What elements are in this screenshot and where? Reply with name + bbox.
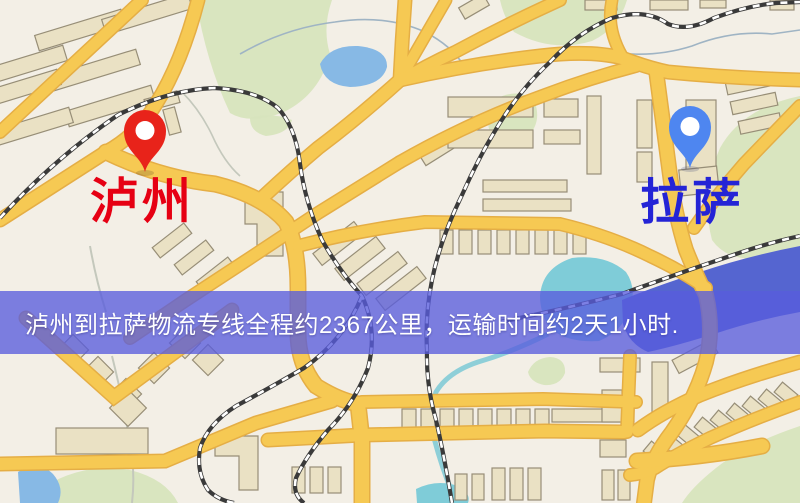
building-block bbox=[587, 96, 601, 174]
road bbox=[362, 399, 636, 402]
route-info-text: 泸州到拉萨物流专线全程约2367公里，运输时间约2天1小时. bbox=[25, 305, 679, 340]
building-block bbox=[510, 468, 523, 500]
building-block bbox=[650, 0, 688, 10]
map-screenshot: 泸州 拉萨 泸州到拉萨物流专线全程约2367公里，运输时间约2天1小时. bbox=[0, 0, 800, 503]
lake bbox=[18, 466, 61, 503]
building-block bbox=[492, 468, 505, 500]
building-block bbox=[402, 409, 416, 429]
lake bbox=[320, 46, 387, 87]
route-info-banner: 泸州到拉萨物流专线全程约2367公里，运输时间约2天1小时. bbox=[0, 291, 800, 354]
building-block bbox=[544, 130, 580, 144]
building-block bbox=[600, 440, 626, 457]
building-block bbox=[459, 0, 490, 19]
building-block bbox=[478, 230, 491, 254]
building-block bbox=[516, 230, 529, 254]
building-block bbox=[459, 230, 472, 254]
building-block bbox=[700, 0, 726, 8]
building-block bbox=[528, 468, 541, 500]
building-block bbox=[56, 428, 148, 454]
building-block bbox=[328, 467, 341, 493]
park-area bbox=[44, 468, 178, 503]
road bbox=[627, 356, 630, 432]
building-block bbox=[554, 230, 567, 254]
building-block bbox=[472, 474, 484, 500]
origin-pin-icon bbox=[118, 104, 172, 178]
destination-pin-icon bbox=[663, 100, 717, 174]
building-block bbox=[637, 100, 652, 148]
destination-pin[interactable] bbox=[663, 100, 717, 179]
building-block bbox=[544, 99, 578, 117]
origin-label: 泸州 bbox=[90, 177, 194, 226]
building-block bbox=[455, 474, 467, 500]
destination-label: 拉萨 bbox=[640, 178, 744, 227]
park-area bbox=[528, 357, 565, 385]
building-block bbox=[535, 230, 548, 254]
building-block bbox=[174, 240, 214, 275]
building-block bbox=[497, 230, 510, 254]
building-block bbox=[483, 199, 571, 211]
map-canvas bbox=[0, 0, 800, 503]
building-block bbox=[483, 180, 567, 192]
building-block bbox=[310, 467, 323, 493]
building-block bbox=[602, 470, 614, 500]
origin-pin[interactable] bbox=[118, 104, 172, 183]
